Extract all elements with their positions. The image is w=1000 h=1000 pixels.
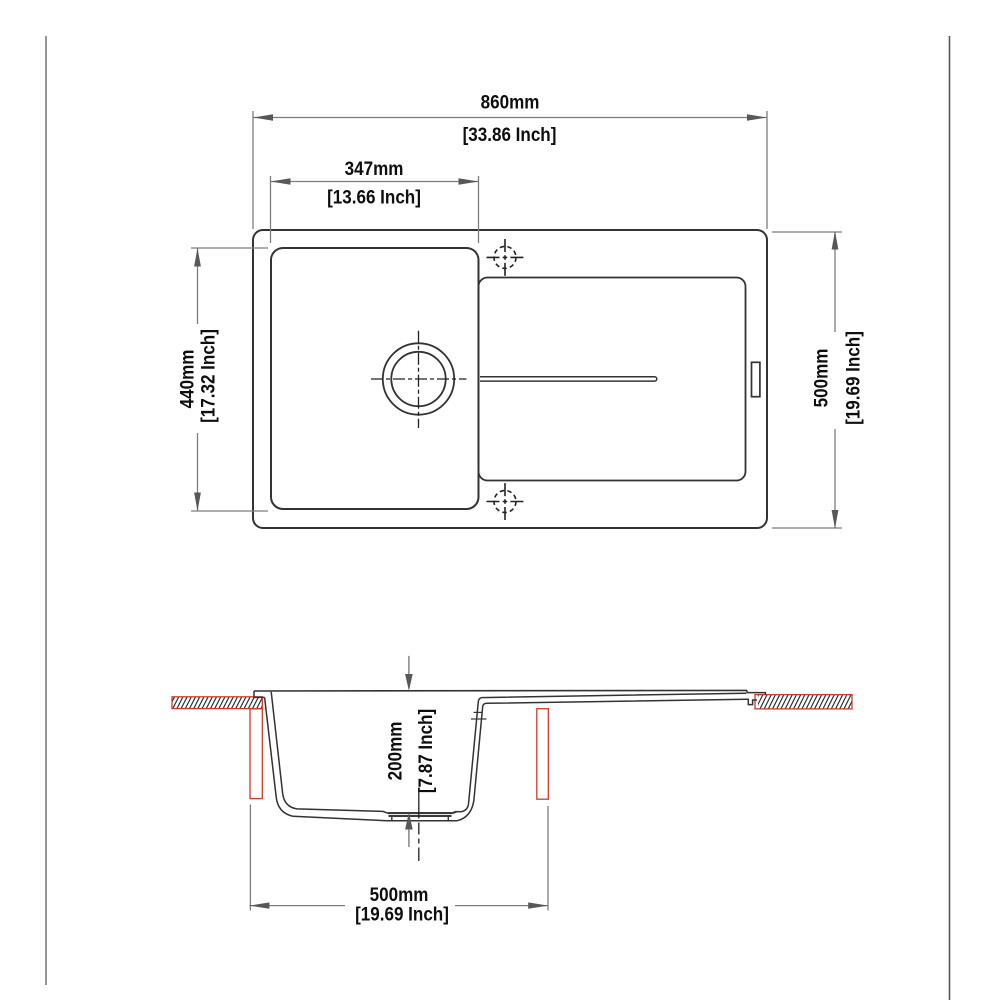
- svg-text:200mm: 200mm: [383, 722, 405, 781]
- svg-text:500mm: 500mm: [809, 349, 831, 408]
- svg-text:440mm: 440mm: [175, 350, 197, 409]
- svg-text:860mm: 860mm: [481, 91, 540, 113]
- svg-text:[7.87 Inch]: [7.87 Inch]: [414, 709, 436, 793]
- svg-text:[33.86 Inch]: [33.86 Inch]: [463, 123, 557, 145]
- svg-text:[19.69 Inch]: [19.69 Inch]: [355, 902, 449, 924]
- svg-text:[13.66 Inch]: [13.66 Inch]: [327, 185, 421, 207]
- svg-text:347mm: 347mm: [345, 157, 404, 179]
- svg-text:[17.32 Inch]: [17.32 Inch]: [196, 329, 218, 423]
- svg-text:[19.69 Inch]: [19.69 Inch]: [841, 331, 863, 425]
